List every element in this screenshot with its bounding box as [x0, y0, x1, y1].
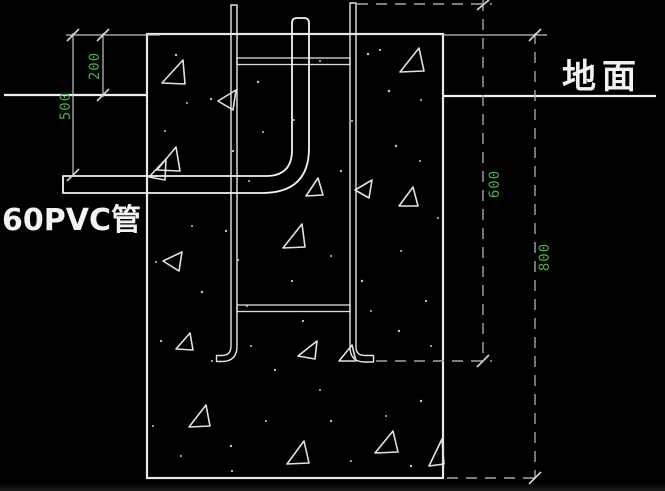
cad-canvas: 500 200 600 800 [0, 0, 665, 491]
concrete-aggregate-symbols [149, 48, 444, 466]
concrete-speckle [152, 49, 439, 472]
dim-value-800: 800 [537, 243, 553, 271]
cad-drawing: 500 200 600 800 [0, 0, 665, 491]
aggregate-triangle [176, 333, 193, 350]
aggregate-triangle [375, 431, 398, 453]
aggregate-triangle [189, 405, 210, 427]
aggregate-triangle [163, 252, 182, 271]
dim-value-600: 600 [487, 170, 503, 198]
aggregate-triangle [287, 441, 309, 464]
aggregate-triangle [162, 60, 185, 84]
dim-500: 500 [58, 29, 160, 181]
dim-600: 600 [357, 0, 503, 367]
anchor-rod-left [217, 5, 238, 362]
aggregate-triangle [399, 187, 418, 206]
tie-bar-lower [237, 305, 350, 312]
dim-value-500: 500 [58, 92, 74, 120]
tie-bar-upper [237, 58, 350, 65]
aggregate-triangle [218, 90, 236, 110]
aggregate-triangle [429, 439, 444, 466]
image-edge-artifact [0, 483, 665, 491]
aggregate-triangle [355, 180, 372, 198]
dim-800: 800 [443, 29, 553, 484]
aggregate-triangle [306, 178, 323, 196]
aggregate-triangle [157, 147, 180, 171]
anchor-rod-right [350, 3, 374, 362]
pipe-label: 60PVC管 [2, 203, 141, 238]
aggregate-triangle [298, 341, 317, 359]
dim-value-200: 200 [87, 52, 103, 80]
foundation-block-outline [147, 34, 443, 478]
dim-200: 200 [87, 29, 109, 101]
aggregate-triangle [283, 224, 305, 248]
pvc-pipe [63, 18, 309, 193]
aggregate-triangle [400, 48, 424, 72]
ground-label: 地面 [562, 57, 642, 97]
